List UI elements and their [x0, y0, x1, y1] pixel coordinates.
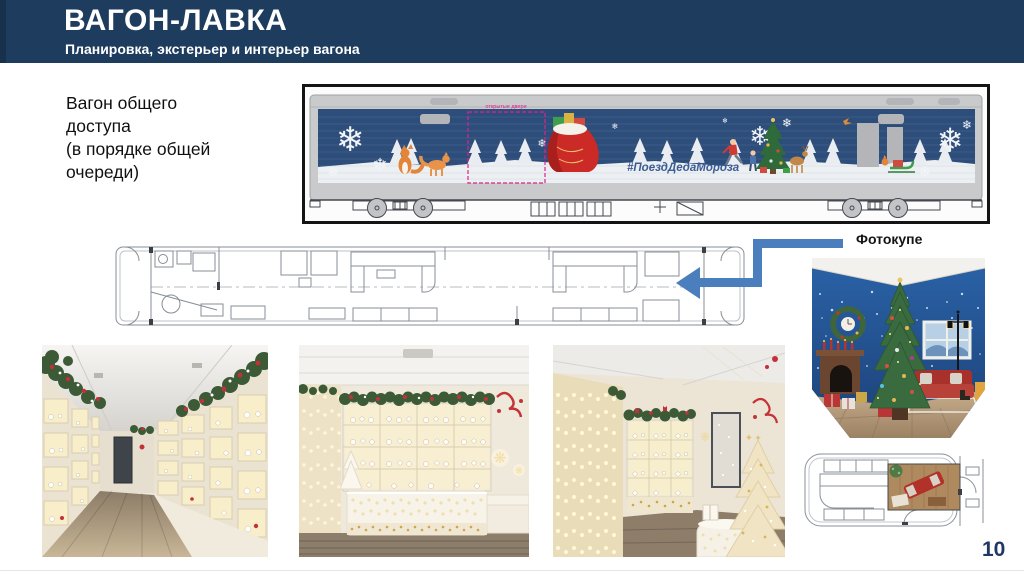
photo-compartment-inset	[888, 464, 960, 510]
interior-photo-light-wall: ❋ ✦ ✦	[553, 345, 785, 557]
note-line: доступа	[66, 115, 210, 138]
hashtag-label: #ПоездДедаМороза	[627, 162, 740, 174]
snowflake-icon: ❄	[962, 118, 972, 132]
page-number: 10	[982, 538, 1005, 562]
interior-photo-corridor	[42, 345, 268, 557]
photo-compartment-photo	[812, 258, 985, 438]
light-curtain	[299, 384, 341, 557]
end-door	[712, 413, 740, 487]
slide-bottom-divider	[0, 570, 1024, 571]
star-icon: ✦	[754, 433, 762, 443]
counter	[347, 491, 529, 535]
access-note: Вагон общего доступа (в порядке общей оч…	[66, 92, 210, 184]
undercarriage-drawing	[310, 199, 982, 218]
snowflake-icon: ❄	[722, 117, 728, 125]
photo-compartment-plan	[800, 447, 990, 535]
sparkle-snowflake-icon: ❋	[515, 466, 523, 477]
slide-title: ВАГОН-ЛАВКА	[64, 4, 287, 38]
wagon-floor-plan	[113, 240, 747, 338]
shelf-unit	[627, 420, 693, 513]
note-line: очереди)	[66, 161, 210, 184]
bogie-icon	[353, 199, 465, 218]
snowflake-icon: ❄	[782, 116, 792, 130]
light-curtain	[553, 373, 623, 557]
snowflake-icon: ❄	[327, 164, 339, 180]
snowflake-icon: ❄	[937, 122, 964, 158]
christmas-livery: ❄ ❄ ❄ ❄ ❄ ❄ ❄ ❄ ❄ ❄ ❄	[318, 104, 975, 183]
door-marking-label: открытые двери	[485, 104, 526, 110]
callout-label: Фотокупе	[856, 231, 922, 247]
wagon-exterior-drawing: ❄ ❄ ❄ ❄ ❄ ❄ ❄ ❄ ❄ ❄ ❄	[305, 87, 987, 221]
wagon-exterior-figure: ❄ ❄ ❄ ❄ ❄ ❄ ❄ ❄ ❄ ❄ ❄	[302, 84, 990, 224]
note-line: Вагон общего	[66, 92, 210, 115]
note-line: (в порядке общей	[66, 138, 210, 161]
interior-photo-counter: ❋ ❋	[299, 345, 529, 557]
snowflake-icon: ❄	[612, 122, 619, 131]
slide-subtitle: Планировка, экстерьер и интерьер вагона	[65, 41, 360, 57]
door-marks	[149, 247, 706, 325]
bogie-icon	[828, 199, 940, 218]
end-door	[114, 437, 132, 483]
shelf-unit	[343, 403, 491, 491]
header-left-accent	[0, 0, 6, 63]
gift-bag-icon	[975, 382, 985, 400]
sparkle-snowflake-icon: ❋	[700, 430, 710, 444]
star-icon: ✦	[745, 433, 753, 444]
snowflake-icon: ❄	[336, 121, 365, 159]
snowflake-icon: ❄	[372, 155, 387, 175]
floor	[299, 533, 529, 557]
sparkle-snowflake-icon: ❋	[494, 450, 507, 467]
snowflake-icon: ❄	[919, 164, 932, 181]
